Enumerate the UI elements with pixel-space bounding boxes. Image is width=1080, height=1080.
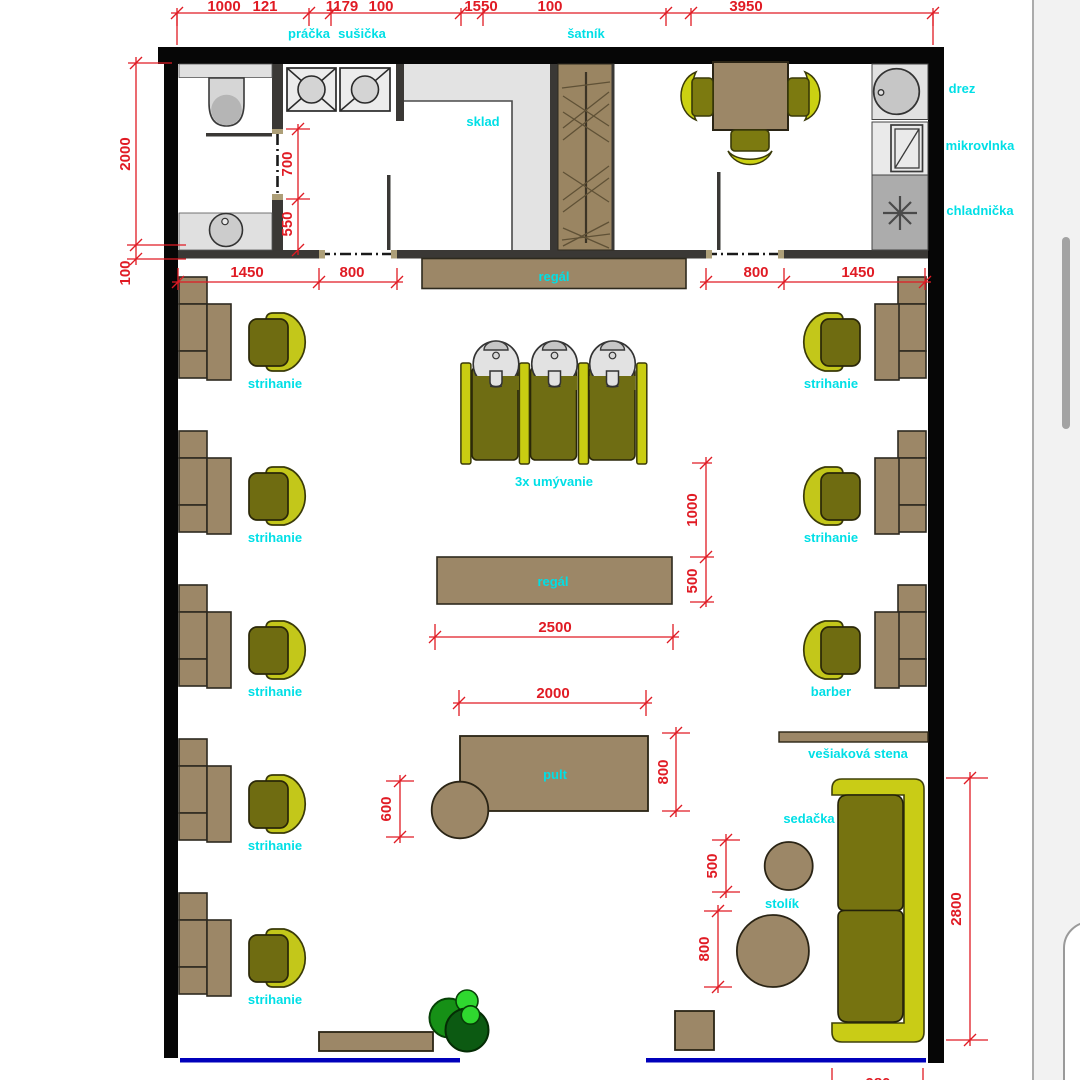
svg-text:1550: 1550 (464, 0, 497, 15)
svg-text:regál: regál (538, 269, 569, 284)
svg-text:mikrovlnka: mikrovlnka (946, 138, 1015, 153)
svg-text:100: 100 (368, 0, 393, 15)
svg-text:100: 100 (537, 0, 562, 15)
svg-text:1000: 1000 (207, 0, 240, 15)
svg-text:800: 800 (743, 264, 768, 281)
svg-text:1000: 1000 (684, 493, 701, 526)
svg-text:3950: 3950 (729, 0, 762, 15)
svg-text:sušička: sušička (338, 26, 386, 41)
svg-text:1179: 1179 (326, 0, 359, 15)
svg-text:700: 700 (279, 151, 296, 176)
svg-text:100: 100 (117, 260, 134, 285)
svg-text:600: 600 (378, 796, 395, 821)
svg-text:strihanie: strihanie (804, 530, 858, 545)
svg-text:2800: 2800 (948, 892, 965, 925)
svg-text:sklad: sklad (466, 114, 499, 129)
svg-text:500: 500 (684, 568, 701, 593)
svg-text:1450: 1450 (841, 264, 874, 281)
svg-text:500: 500 (704, 853, 721, 878)
svg-text:chladnička: chladnička (946, 203, 1014, 218)
svg-text:800: 800 (339, 264, 364, 281)
svg-text:121: 121 (252, 0, 277, 15)
svg-text:pult: pult (543, 767, 567, 782)
svg-text:drez: drez (949, 81, 976, 96)
svg-text:1450: 1450 (230, 264, 263, 281)
svg-text:strihanie: strihanie (804, 376, 858, 391)
svg-text:strihanie: strihanie (248, 838, 302, 853)
svg-text:2000: 2000 (536, 685, 569, 702)
svg-text:sedačka: sedačka (783, 811, 835, 826)
svg-text:strihanie: strihanie (248, 992, 302, 1007)
svg-text:strihanie: strihanie (248, 376, 302, 391)
svg-text:550: 550 (279, 211, 296, 236)
svg-text:980: 980 (865, 1075, 890, 1080)
svg-text:stolík: stolík (765, 896, 800, 911)
svg-text:barber: barber (811, 684, 851, 699)
svg-text:vešiaková stena: vešiaková stena (808, 746, 909, 761)
svg-text:strihanie: strihanie (248, 684, 302, 699)
svg-text:3x umývanie: 3x umývanie (515, 474, 593, 489)
svg-text:2000: 2000 (117, 137, 134, 170)
svg-text:práčka: práčka (288, 26, 331, 41)
svg-text:2500: 2500 (538, 619, 571, 636)
svg-text:800: 800 (696, 936, 713, 961)
svg-text:šatník: šatník (567, 26, 605, 41)
svg-text:strihanie: strihanie (248, 530, 302, 545)
svg-text:regál: regál (537, 574, 568, 589)
svg-text:800: 800 (655, 759, 672, 784)
